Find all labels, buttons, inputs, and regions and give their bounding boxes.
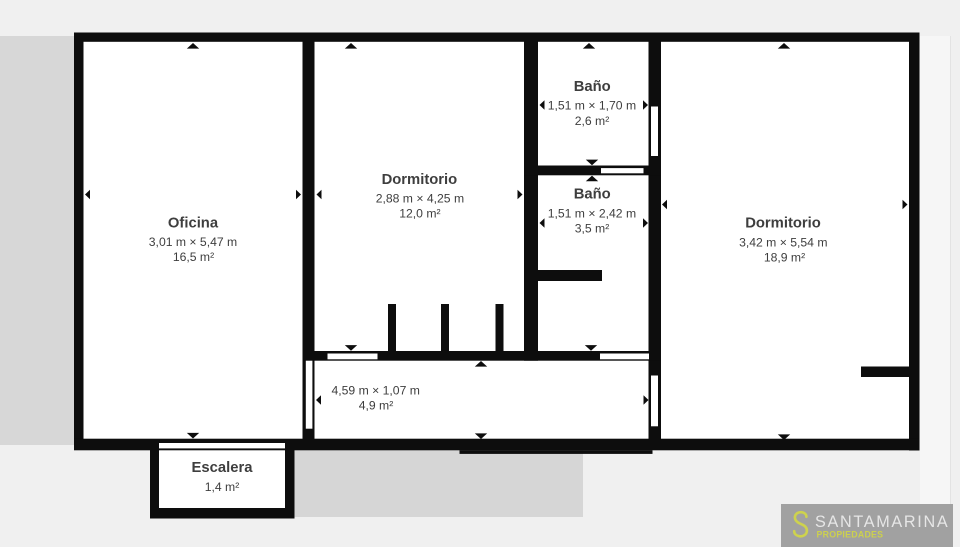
svg-text:1,51 m × 1,70 m: 1,51 m × 1,70 m	[548, 99, 636, 113]
svg-text:4,9 m²: 4,9 m²	[359, 399, 394, 413]
svg-text:Dormitorio: Dormitorio	[745, 216, 821, 232]
svg-text:1,4 m²: 1,4 m²	[205, 480, 240, 494]
svg-text:4,59 m × 1,07 m: 4,59 m × 1,07 m	[331, 384, 419, 398]
svg-text:1,51 m × 2,42 m: 1,51 m × 2,42 m	[548, 207, 636, 221]
svg-text:Baño: Baño	[574, 79, 611, 95]
svg-text:3,01 m × 5,47 m: 3,01 m × 5,47 m	[149, 235, 237, 249]
svg-text:3,5 m²: 3,5 m²	[575, 222, 610, 236]
svg-text:PROPIEDADES: PROPIEDADES	[817, 529, 884, 539]
svg-text:2,6 m²: 2,6 m²	[575, 114, 610, 128]
svg-text:3,42 m × 5,54 m: 3,42 m × 5,54 m	[739, 235, 827, 249]
svg-text:12,0 m²: 12,0 m²	[399, 207, 440, 221]
svg-text:SANTAMARINA: SANTAMARINA	[815, 513, 949, 531]
svg-text:2,88 m × 4,25 m: 2,88 m × 4,25 m	[376, 192, 464, 206]
svg-text:Oficina: Oficina	[168, 216, 219, 232]
svg-text:Dormitorio: Dormitorio	[382, 172, 458, 188]
svg-text:16,5 m²: 16,5 m²	[173, 250, 214, 264]
svg-text:Baño: Baño	[574, 187, 611, 203]
svg-text:18,9 m²: 18,9 m²	[764, 251, 805, 265]
svg-text:Escalera: Escalera	[192, 460, 254, 476]
